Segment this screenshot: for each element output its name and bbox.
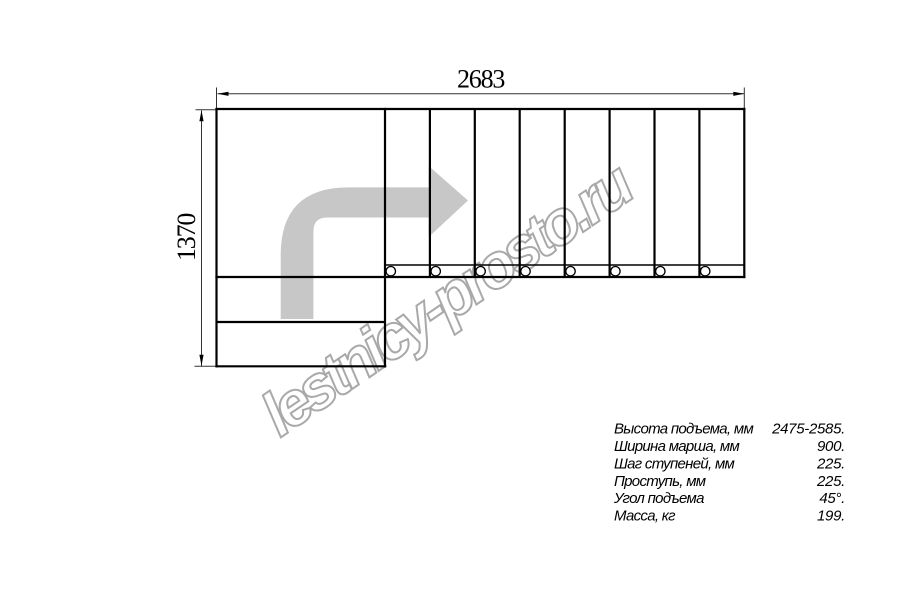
svg-text:Проступь, мм: Проступь, мм [614,473,706,490]
svg-text:2683: 2683 [457,65,504,94]
svg-text:Угол подъема: Угол подъема [613,490,704,507]
svg-text:Масса, кг: Масса, кг [614,508,676,525]
svg-text:2475-2585.: 2475-2585. [771,421,845,438]
svg-text:Ширина марша, мм: Ширина марша, мм [614,438,739,455]
svg-text:225.: 225. [816,455,845,472]
svg-text:225.: 225. [816,473,845,490]
svg-text:1370: 1370 [172,213,201,261]
svg-text:Высота подъема, мм: Высота подъема, мм [614,421,753,438]
svg-text:Шаг ступеней, мм: Шаг ступеней, мм [614,455,735,472]
svg-text:45°.: 45°. [819,490,845,507]
svg-text:900.: 900. [817,438,845,455]
svg-text:199.: 199. [817,508,845,525]
